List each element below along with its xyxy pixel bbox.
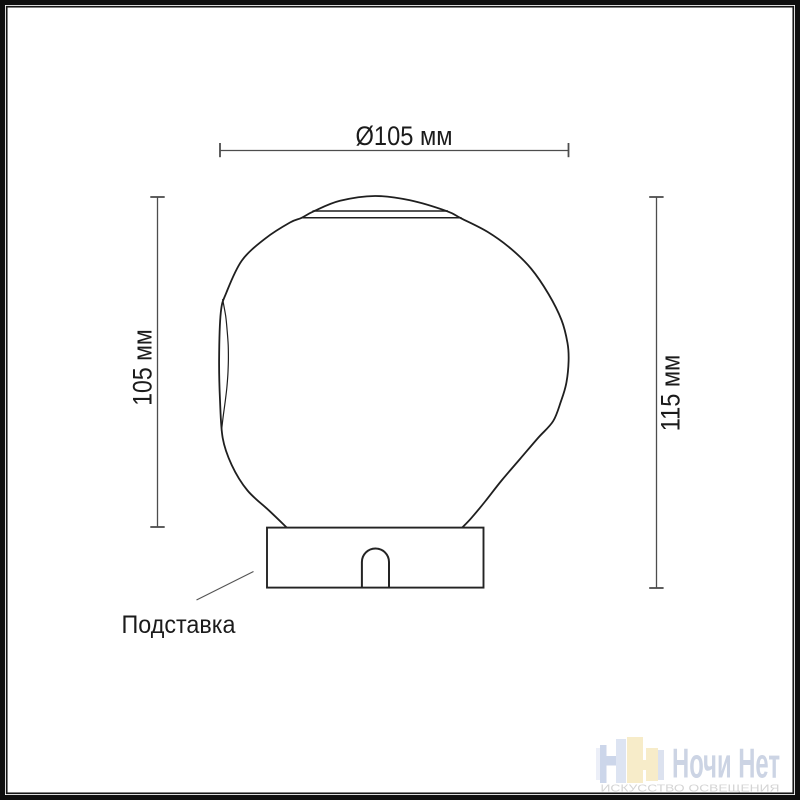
svg-text:Ночи Нет: Ночи Нет (672, 740, 780, 787)
svg-text:115 мм: 115 мм (656, 355, 686, 432)
svg-text:Ø105 мм: Ø105 мм (356, 121, 453, 151)
svg-text:Подставка: Подставка (122, 611, 236, 639)
svg-text:105 мм: 105 мм (128, 329, 158, 406)
